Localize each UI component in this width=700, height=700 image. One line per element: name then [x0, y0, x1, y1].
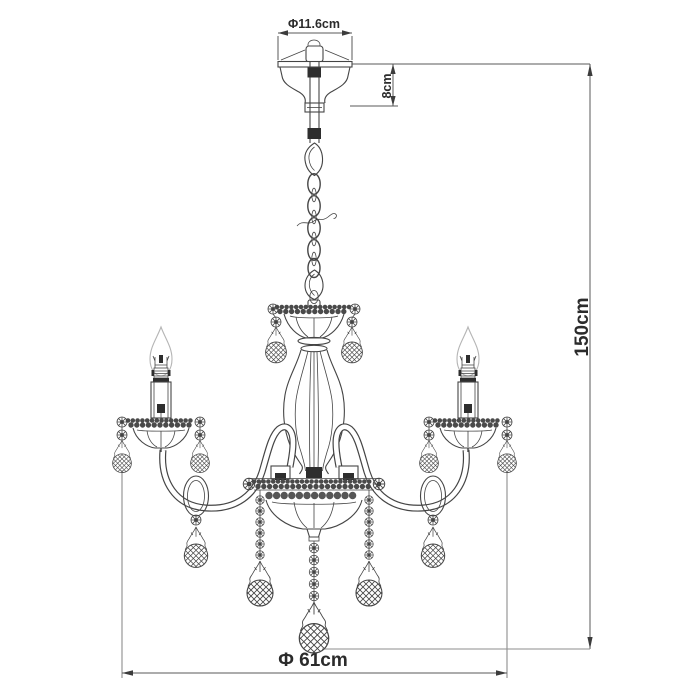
right-arm [336, 427, 466, 581]
dimension-canopy-height: 8cm [350, 64, 398, 106]
dimension-fixture-diameter: Φ 61cm [122, 470, 590, 678]
bottom-bowl [243, 478, 385, 541]
dimension-overall-height: 150cm [572, 64, 593, 649]
canopy-height-label: 8cm [380, 73, 394, 98]
canopy-diameter-label: Φ11.6cm [288, 17, 340, 31]
crown-crystal-right [339, 327, 365, 375]
overall-height-label: 150cm [572, 297, 593, 356]
chandelier-dimension-diagram: Φ11.6cm 8cm 150cm Φ 61cm [0, 0, 700, 700]
dimension-canopy-diameter: Φ11.6cm [278, 17, 352, 60]
left-arm [163, 427, 293, 581]
ceiling-canopy [278, 40, 352, 143]
crown-crystal-left [263, 327, 289, 375]
center-column [263, 291, 365, 479]
diagram-canvas: Φ11.6cm 8cm 150cm Φ 61cm [0, 0, 700, 700]
hanging-chain [297, 143, 336, 300]
left-bead-strand [244, 490, 276, 621]
